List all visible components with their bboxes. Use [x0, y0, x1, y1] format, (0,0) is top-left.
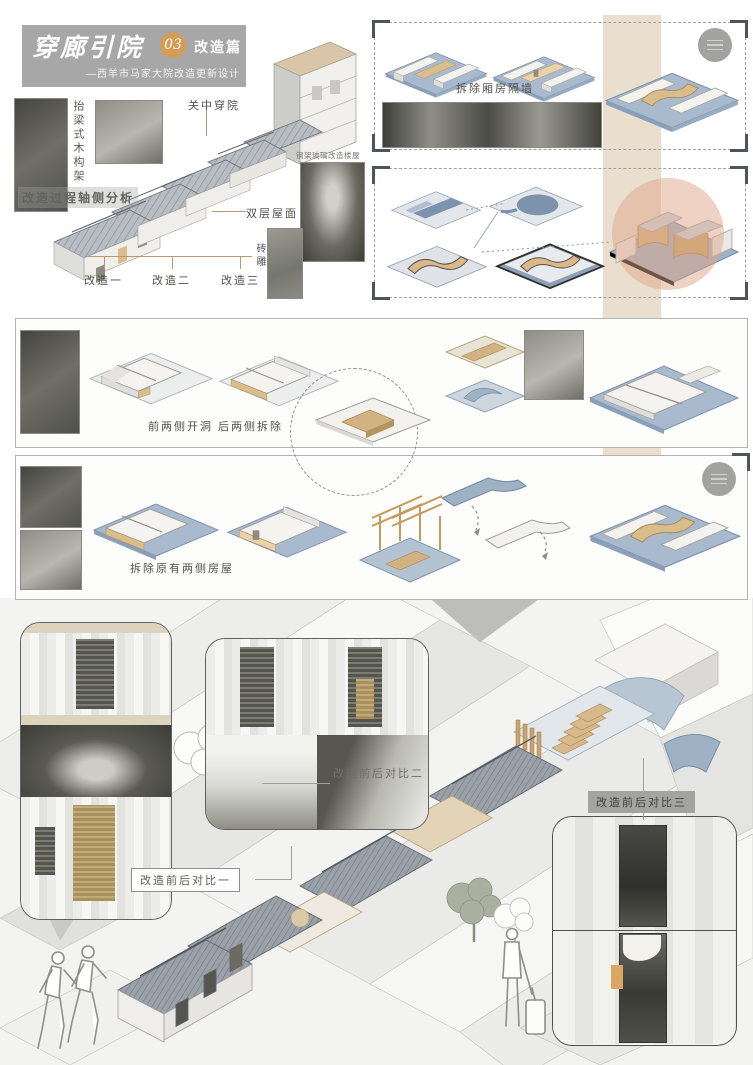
leader-line — [643, 758, 644, 791]
label-open-front: 前两侧开洞 后两侧拆除 — [148, 418, 283, 434]
leader-tick — [104, 256, 105, 269]
label-courtyard-type: 关中穿院 — [188, 97, 240, 113]
axon-module-hip-roof — [586, 330, 742, 434]
comparison-collage-3 — [552, 816, 737, 1046]
seal-stamp-icon — [698, 28, 732, 62]
comparison-collage-2 — [205, 638, 429, 830]
tan-highlight-circle — [612, 178, 724, 290]
photo-courtyard — [95, 100, 163, 164]
photo-existing-2 — [524, 330, 584, 400]
leader-line — [212, 211, 246, 212]
label-step2: 改造二 — [152, 272, 191, 288]
photo-existing-3 — [20, 466, 82, 528]
label-comparison-2: 改造前后对比二 — [333, 765, 424, 781]
photo-corridor — [300, 162, 365, 262]
photo-existing-4 — [20, 530, 82, 590]
seal-stamp-icon — [702, 462, 736, 496]
label-remove-side-rooms: 拆除原有两侧房屋 — [130, 560, 234, 576]
axon-module-curved-slabs — [428, 462, 578, 572]
axon-module-gable-house — [88, 326, 214, 408]
leader-tick — [172, 256, 173, 269]
label-demolish-partitions: 拆除厢房隔墙 — [456, 80, 534, 96]
leader-tick — [240, 256, 241, 269]
axon-module-tan-house — [90, 468, 222, 560]
photo-existing-1 — [20, 330, 80, 434]
label-double-roof: 双层屋面 — [246, 205, 298, 221]
label-step1: 改造一 — [84, 272, 123, 288]
corner-bracket — [730, 20, 748, 38]
photo-brick-carving — [267, 228, 303, 299]
leader-line — [206, 110, 207, 136]
axon-module-flat-canopy — [312, 388, 434, 444]
leader-line — [88, 256, 252, 257]
label-analysis: 改造过程轴侧分析 — [18, 187, 138, 208]
label-comparison-1: 改造前后对比一 — [131, 868, 240, 892]
leader-line — [291, 846, 292, 880]
leader-line — [262, 783, 330, 784]
label-step3: 改造三 — [221, 272, 260, 288]
leader-line — [255, 879, 291, 880]
dotted-connectors — [462, 192, 622, 272]
label-comparison-3: 改造前后对比三 — [588, 791, 695, 813]
axon-module-steps — [442, 328, 528, 416]
corner-bracket — [730, 134, 748, 152]
presentation-board: 穿廊引院 03 改造篇 —西羊市马家大院改造更新设计 — [0, 0, 753, 1065]
leader-line — [643, 810, 644, 820]
label-glass-note: 钢架玻璃改造楼屋 — [296, 150, 360, 161]
corner-bracket — [372, 166, 390, 184]
photo-panorama-interior — [382, 102, 602, 148]
